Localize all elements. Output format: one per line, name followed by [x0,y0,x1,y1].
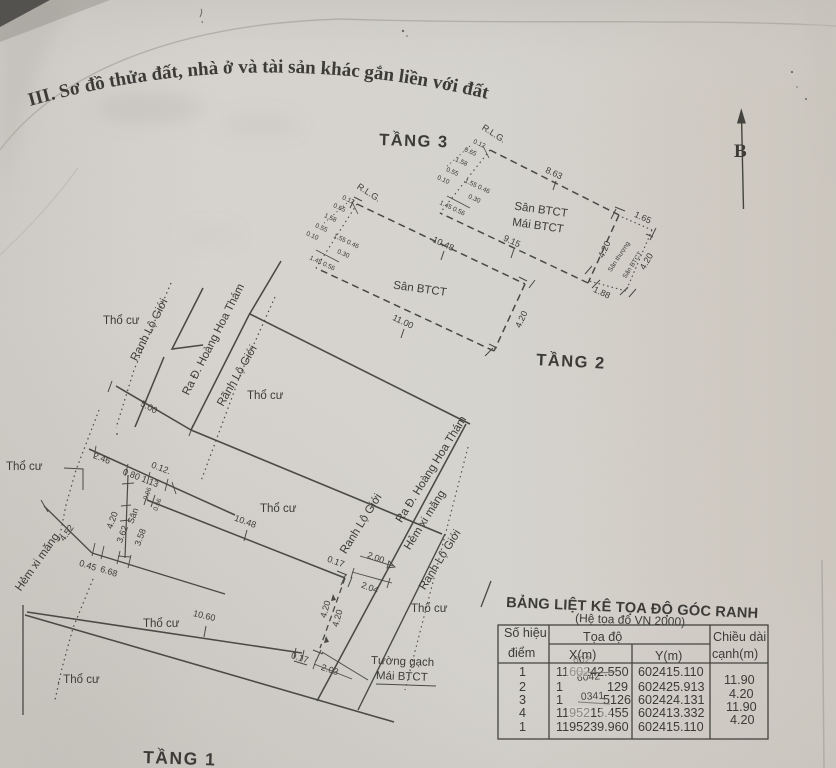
svg-text:1195215.455: 1195215.455 [556,706,629,720]
svg-text:Y(m): Y(m) [655,649,682,663]
svg-text:TẦNG 1: TẦNG 1 [143,746,217,768]
svg-text:1: 1 [556,693,563,707]
svg-text:602413.332: 602413.332 [638,706,705,720]
svg-text:602415.110: 602415.110 [638,720,704,734]
svg-text:602425.913: 602425.913 [638,680,705,694]
svg-text:Tường gạch: Tường gạch [371,655,435,669]
svg-text:1: 1 [519,720,526,734]
svg-text:602: 602 [573,654,591,666]
svg-text:2: 2 [519,680,526,694]
svg-text:11.90: 11.90 [726,700,757,714]
svg-text:4: 4 [519,706,526,720]
svg-text:4.20: 4.20 [730,713,755,727]
svg-text:TẦNG 2: TẦNG 2 [536,350,606,373]
svg-text:Thổ cư: Thổ cư [260,503,297,515]
svg-text:Chiều dài: Chiều dài [713,630,766,644]
svg-text:1: 1 [556,680,563,694]
svg-text:TẦNG 3: TẦNG 3 [379,130,449,151]
svg-text:1: 1 [519,665,526,679]
svg-text:129: 129 [607,680,628,694]
svg-text:. Thổ cư: . Thổ cư [57,674,100,686]
svg-text:1195239.960: 1195239.960 [556,720,629,734]
svg-text:cạnh(m): cạnh(m) [712,647,758,661]
svg-text:Mái BTCT: Mái BTCT [376,670,428,684]
svg-text:Thổ cư: Thổ cư [103,315,140,327]
svg-text:4.20: 4.20 [729,687,754,701]
svg-text:3: 3 [519,693,526,707]
svg-text:điểm: điểm [508,646,535,660]
svg-text:602424.131: 602424.131 [638,693,705,707]
svg-text:Thổ cư: Thổ cư [411,603,448,615]
svg-text:Thổ cư: Thổ cư [6,461,43,473]
svg-text:Tọa độ: Tọa độ [583,630,622,644]
svg-text:Thổ cư: Thổ cư [143,618,180,630]
svg-text:0341: 0341 [581,690,605,703]
svg-text:602415.110: 602415.110 [638,665,704,679]
svg-text:5126: 5126 [603,693,631,707]
svg-text:Thổ cư: Thổ cư [247,390,284,402]
svg-text:Số hiệu: Số hiệu [504,626,547,640]
svg-text:11.90: 11.90 [724,673,755,687]
svg-text:B: B [734,141,747,162]
